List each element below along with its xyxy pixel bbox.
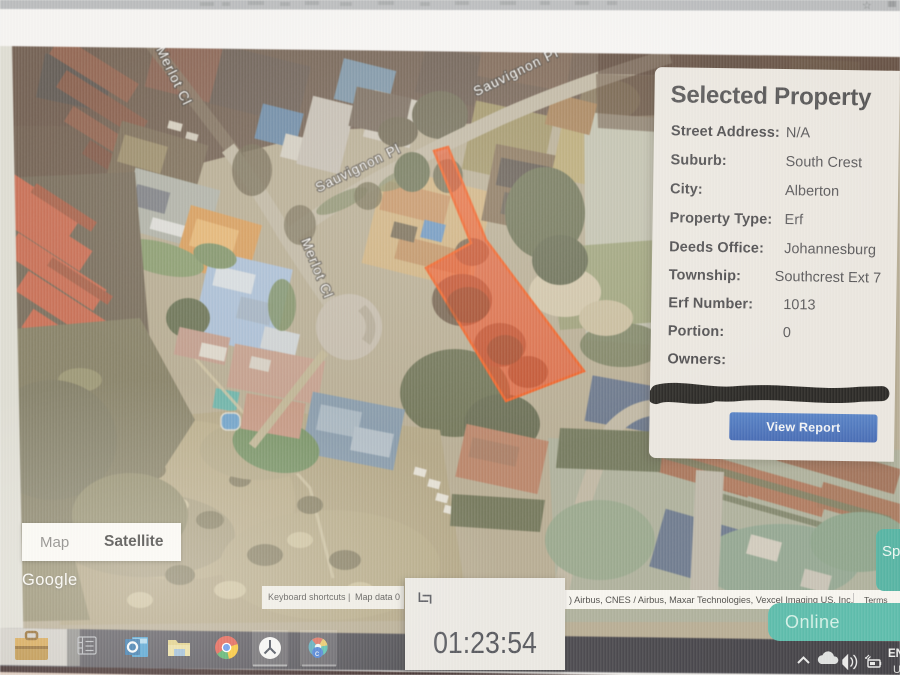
svg-text:EN: EN (888, 648, 900, 660)
svg-text:U: U (893, 664, 900, 675)
svg-text:☆: ☆ (862, 0, 872, 12)
svg-text:c: c (315, 649, 319, 658)
